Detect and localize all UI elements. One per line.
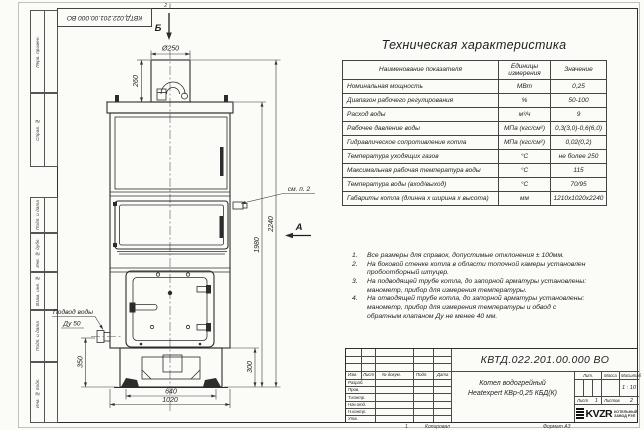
dimensions: Ø250 260 1980 2240 350 300: [78, 46, 281, 409]
base-foot-left: [121, 378, 139, 387]
water-inlet-stub: [91, 331, 122, 343]
view-a-label: А: [295, 222, 303, 233]
upper-door-panel: [115, 117, 227, 189]
boiler-drawing: 2: [0, 0, 644, 430]
boiler-front-view: [91, 50, 247, 411]
elbow-fitting: [157, 82, 188, 100]
base-foot-right: [203, 378, 221, 387]
view-b-label: Б: [155, 23, 162, 34]
stud-right: [224, 95, 228, 102]
dim-overall-width: 1020: [162, 397, 178, 404]
base-notch: [163, 355, 182, 372]
firebox-door: [115, 201, 228, 249]
dim-chimney-dia: Ø250: [161, 46, 179, 53]
dim-body-height: 1980: [254, 237, 261, 253]
dim-chimney-height: 260: [133, 75, 140, 88]
see-note-label: см. п. 2: [288, 186, 311, 193]
dim-total-height: 2240: [268, 216, 275, 233]
view-a-arrow: [285, 233, 293, 239]
water-supply-label-line2: Ду 50: [62, 321, 81, 328]
water-supply-label-line1: Подвод воды: [53, 308, 93, 316]
door-hinges: [197, 285, 211, 332]
view-b-arrow: [166, 33, 172, 41]
drawing-sheet: Перв. примен. Справ. № Подп. и дата Инв.…: [0, 0, 644, 430]
dim-base-width: 640: [165, 389, 177, 396]
dim-inlet-height: 350: [78, 356, 85, 368]
upper-door-handle: [220, 147, 224, 176]
zone-mark-top: 2: [163, 3, 167, 9]
ash-door-handle: [134, 305, 157, 311]
dim-base-height: 300: [247, 361, 254, 373]
side-fitting: [233, 202, 247, 209]
stud-left: [115, 95, 119, 102]
firebox-door-handle: [220, 216, 224, 238]
zone-mark-top-group: 2: [163, 3, 170, 9]
base-opening: [142, 357, 200, 379]
